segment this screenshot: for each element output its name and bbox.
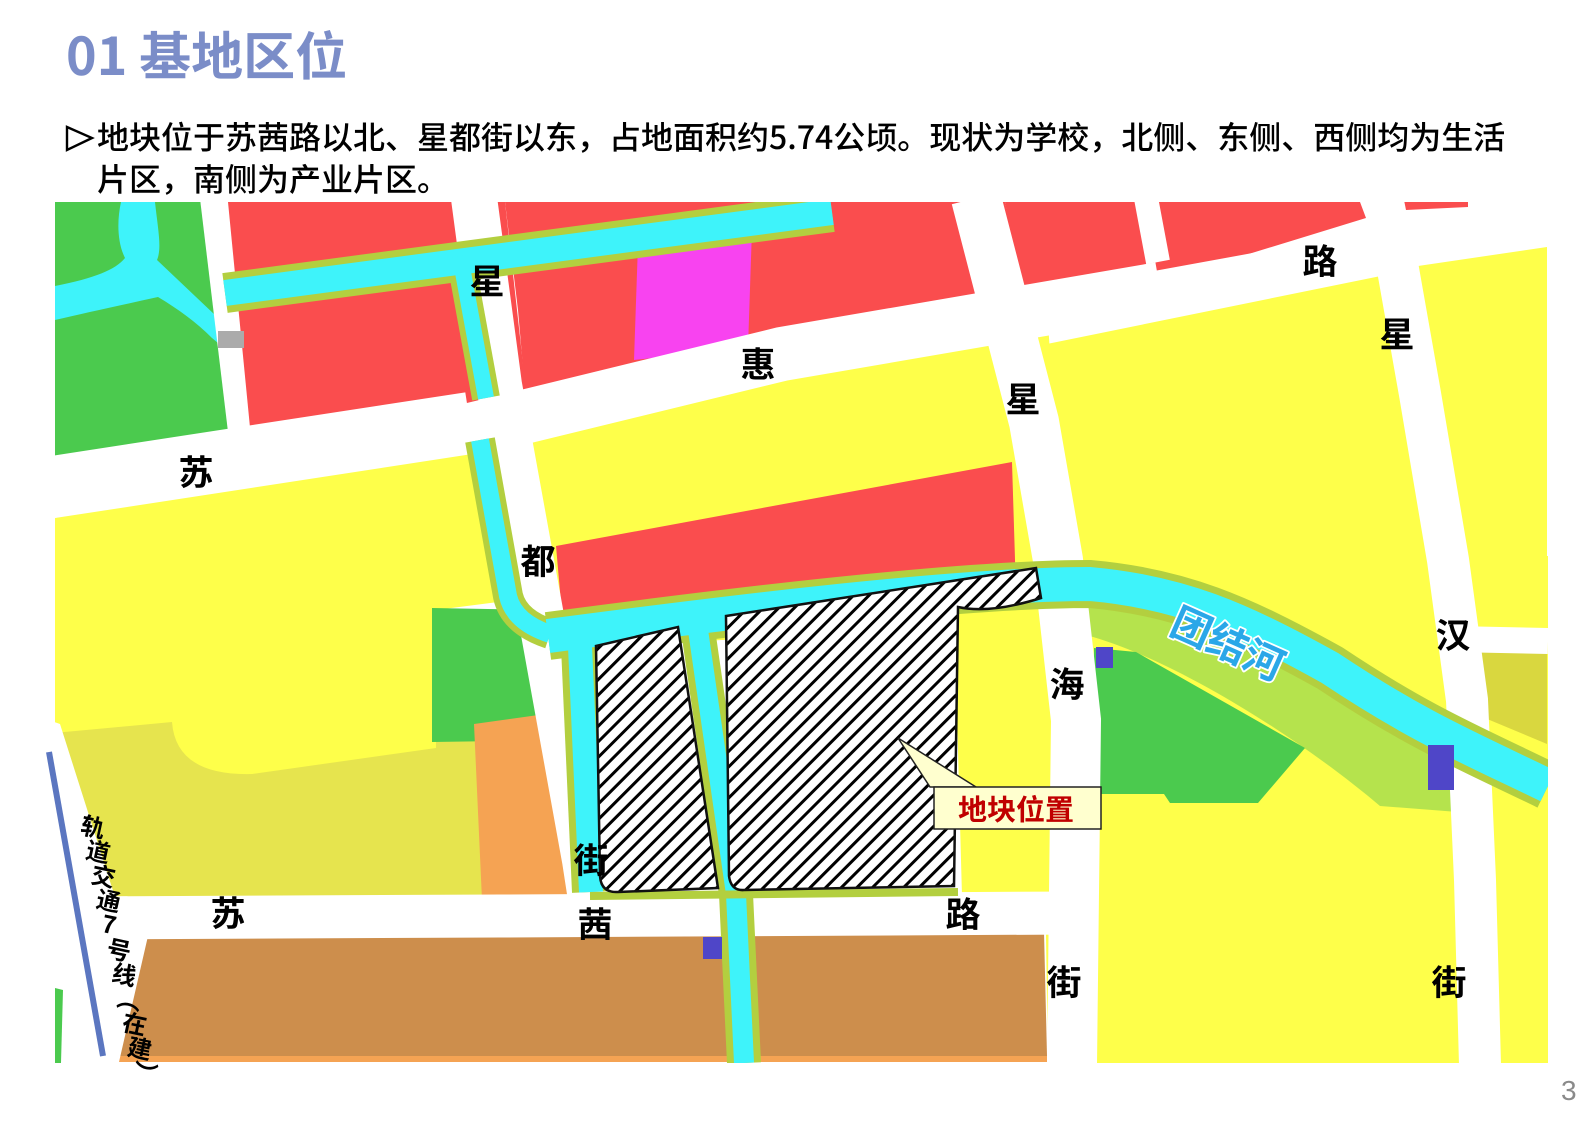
svg-text:3: 3 xyxy=(1561,1075,1577,1106)
